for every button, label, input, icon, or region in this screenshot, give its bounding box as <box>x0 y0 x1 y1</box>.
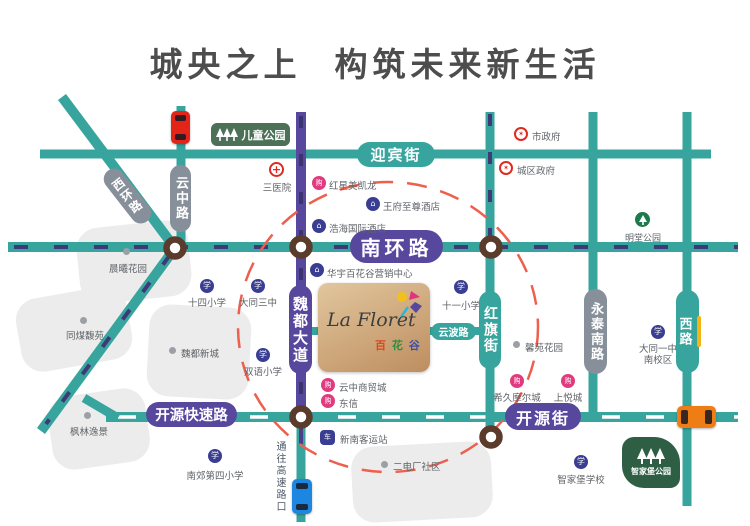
road-label-yongtai: 永泰南路 <box>584 289 607 374</box>
logo-cn-char: 花 <box>392 339 404 352</box>
road-label-kaiyuan-express: 开源快速路 <box>146 402 237 427</box>
building-icon: ⌂ <box>310 263 324 277</box>
huayu-label: 华宇百花谷营销中心 <box>327 266 413 280</box>
road-label-yingbin: 迎宾街 <box>357 142 435 167</box>
chengqu-label: 城区政府 <box>517 163 555 177</box>
xijiu-label: 希久摩尔城 <box>493 390 541 404</box>
logo-cn-char: 百 <box>375 339 387 352</box>
logo-name-en: La Floret <box>327 309 416 331</box>
road-label-kaiyuan-street: 开源街 <box>505 403 581 430</box>
nanjiao4-label: 南郊第四小学 <box>186 468 243 482</box>
car-window <box>175 134 187 140</box>
mall-icon: 购 <box>561 374 575 388</box>
school-icon: 学 <box>200 279 214 293</box>
tree-icon <box>635 212 650 227</box>
children-park-label: 儿童公园 <box>242 127 286 143</box>
mall-icon: 购 <box>510 374 524 388</box>
shiyi-label: 十一小学 <box>442 298 480 312</box>
zhijiabu-park: 智家堡公园 <box>622 437 680 488</box>
mall-icon: 购 <box>312 176 326 190</box>
roundabout <box>483 239 500 256</box>
logo-name-cn: 百 花 谷 <box>375 337 421 353</box>
hotel-icon: ⌂ <box>366 197 380 211</box>
yunzhong-mall-label: 云中商贸城 <box>339 380 387 394</box>
roundabout <box>167 240 184 257</box>
tongmei-label: 同煤馥苑 <box>66 328 104 342</box>
datong3-label: 大同三中 <box>239 295 277 309</box>
to-highway-label: 通往高速路口 <box>272 441 287 513</box>
page-title: 城央之上 构筑未来新生活 <box>0 38 750 86</box>
roundabout <box>293 239 310 256</box>
area-dot <box>381 461 388 468</box>
bus-station-icon: 车 <box>320 430 335 445</box>
car-window <box>175 115 187 121</box>
haohai-label: 浩海国际酒店 <box>329 221 386 235</box>
school-icon: 学 <box>256 348 270 362</box>
car-window <box>705 410 712 424</box>
car-window <box>681 410 688 424</box>
mall-icon: 购 <box>321 378 335 392</box>
project-logo: La Floret 百 花 谷 <box>318 283 430 372</box>
sanyiyuan-label: 三医院 <box>263 180 292 194</box>
datong1-campus-label: 南校区 <box>644 352 673 366</box>
blue-car <box>292 479 312 514</box>
school-icon: 学 <box>574 455 588 469</box>
area-dot <box>80 317 87 324</box>
road-label-hongqi: 红旗街 <box>479 291 501 369</box>
road-label-xilu-text: 西路 <box>675 317 694 347</box>
hongxing-label: 红星美凯龙 <box>329 178 377 192</box>
shangyue-label: 上悦城 <box>554 390 583 404</box>
zhijiabu-park-label: 智家堡公园 <box>631 466 671 477</box>
road-xihuan-dashes <box>46 255 170 424</box>
roundabout <box>293 409 310 426</box>
school-icon: 学 <box>251 279 265 293</box>
area-dot <box>123 248 130 255</box>
red-car <box>171 111 190 144</box>
road-label-xilu: 西路 <box>676 290 699 373</box>
wangfu-label: 王府至尊酒店 <box>383 199 440 213</box>
road-label-yunbo: 云波路 <box>431 323 476 340</box>
car-window <box>296 483 308 489</box>
location-map: 城央之上 构筑未来新生活 迎宾街 南环路 云中路 西环路 魏都大道 红旗街 云波… <box>0 0 750 526</box>
dongxin-label: 东信 <box>339 396 358 410</box>
yellow-car <box>697 316 701 347</box>
xinnan-label: 新南客运站 <box>340 432 388 446</box>
fenglin-label: 枫林逸景 <box>70 424 108 438</box>
school-icon: 学 <box>208 449 222 463</box>
zhijiabu-school-label: 智家堡学校 <box>557 472 605 486</box>
trees-icon <box>636 448 666 464</box>
road-label-weidu: 魏都大道 <box>289 285 312 374</box>
trees-icon <box>216 128 238 141</box>
shizhengfu-label: 市政府 <box>532 129 561 143</box>
erdianchang-label: 二电厂社区 <box>393 459 441 473</box>
car-window <box>296 504 308 510</box>
shisi-label: 十四小学 <box>188 295 226 309</box>
area-dot <box>169 347 176 354</box>
weidu-xincheng-label: 魏都新城 <box>181 346 219 360</box>
area-dot <box>513 341 520 348</box>
xinyuan-label: 馨苑花园 <box>525 340 563 354</box>
shuangyu-label: 双语小学 <box>244 364 282 378</box>
hospital-icon: + <box>269 162 284 177</box>
government-icon: ✶ <box>499 161 513 175</box>
government-icon: ✶ <box>514 127 528 141</box>
roundabout <box>483 429 500 446</box>
logo-cn-char: 谷 <box>409 339 421 352</box>
area-dot <box>84 412 91 419</box>
mingtang-park-label: 明堂公园 <box>625 231 661 244</box>
road-label-yunzhong: 云中路 <box>170 165 191 232</box>
school-icon: 学 <box>651 325 665 339</box>
chenxi-label: 晨曦花园 <box>109 261 147 275</box>
hotel-icon: ⌂ <box>312 219 326 233</box>
school-icon: 学 <box>454 280 468 294</box>
orange-car <box>677 406 716 428</box>
children-park: 儿童公园 <box>211 123 290 146</box>
mall-icon: 购 <box>321 394 335 408</box>
